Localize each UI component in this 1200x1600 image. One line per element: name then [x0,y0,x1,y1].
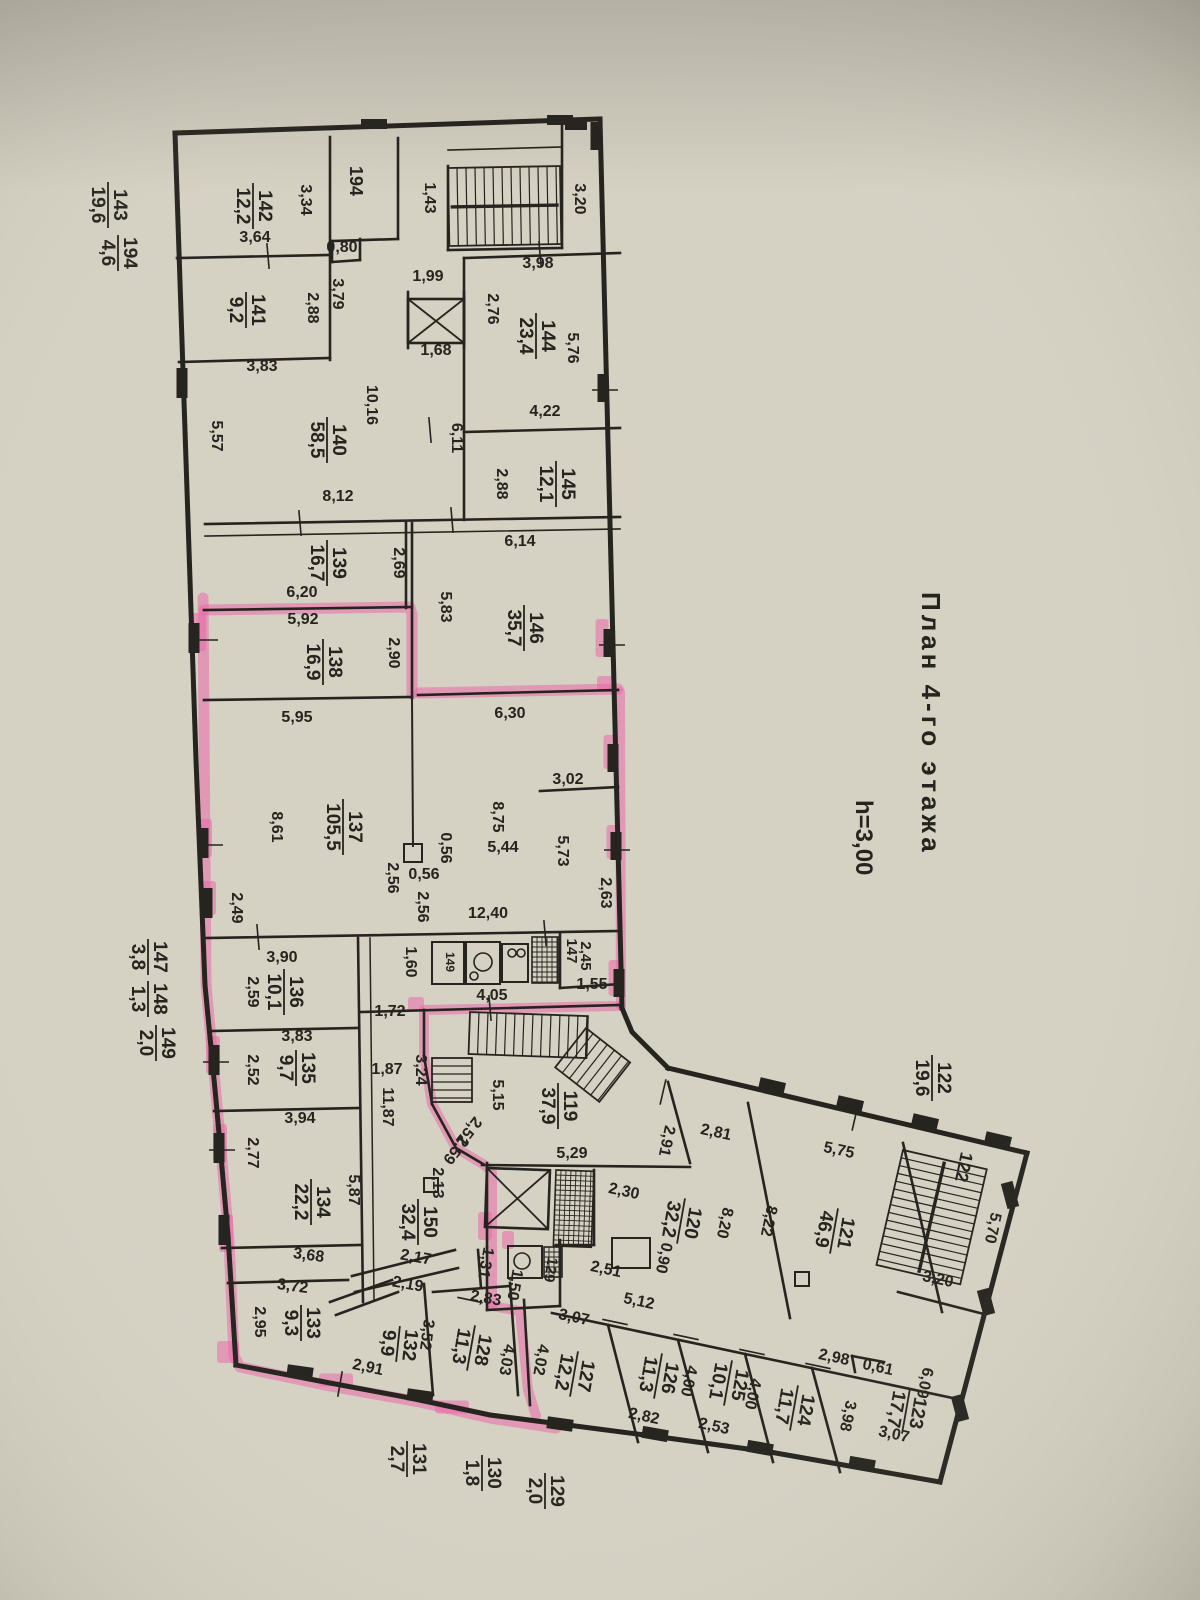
floor-plan-photo: 14319,61944,614212,21419,214058,514423,4… [0,0,1200,1600]
floor-plan-svg: 14319,61944,614212,21419,214058,514423,4… [0,0,1200,1600]
photo-top-shadow [0,0,1200,1600]
